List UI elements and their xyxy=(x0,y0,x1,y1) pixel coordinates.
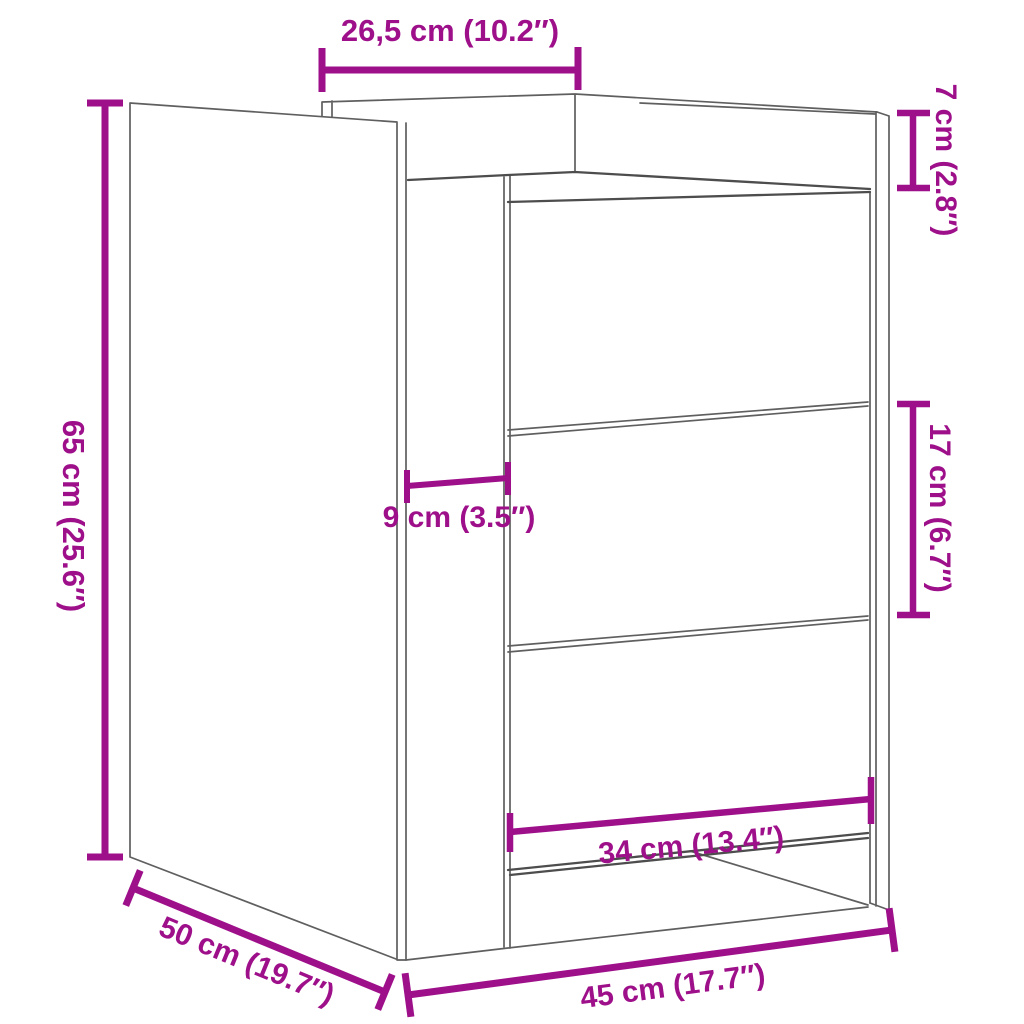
drawer-area-top-edge xyxy=(508,192,870,202)
drawer-gap-lines xyxy=(508,402,868,652)
dim-height-lines xyxy=(87,103,123,857)
dim-top-depth-lines xyxy=(322,47,578,92)
dim-drawer-width-label: 34 cm (13.4″) xyxy=(597,821,785,871)
diagram-canvas: 26,5 cm (10.2″) 7 cm (2.8″) 65 cm (25.6″… xyxy=(0,0,1024,1024)
dim-back-height-label: 7 cm (2.8″) xyxy=(929,84,962,237)
dim-back-height-lines xyxy=(897,113,930,188)
dim-drawer-height-label: 17 cm (6.7″) xyxy=(923,423,956,592)
left-side-panel-outline xyxy=(130,103,406,960)
top-recess-floor-edge xyxy=(408,172,870,189)
dimension-labels: 26,5 cm (10.2″) 7 cm (2.8″) 65 cm (25.6″… xyxy=(56,13,962,1015)
dim-top-depth-label: 26,5 cm (10.2″) xyxy=(341,13,559,48)
dim-left-inset-label: 9 cm (3.5″) xyxy=(383,501,536,534)
dimension-diagram: 26,5 cm (10.2″) 7 cm (2.8″) 65 cm (25.6″… xyxy=(0,0,1024,1024)
dim-left-inset-lines xyxy=(407,462,508,503)
dim-height-label: 65 cm (25.6″) xyxy=(56,420,91,612)
